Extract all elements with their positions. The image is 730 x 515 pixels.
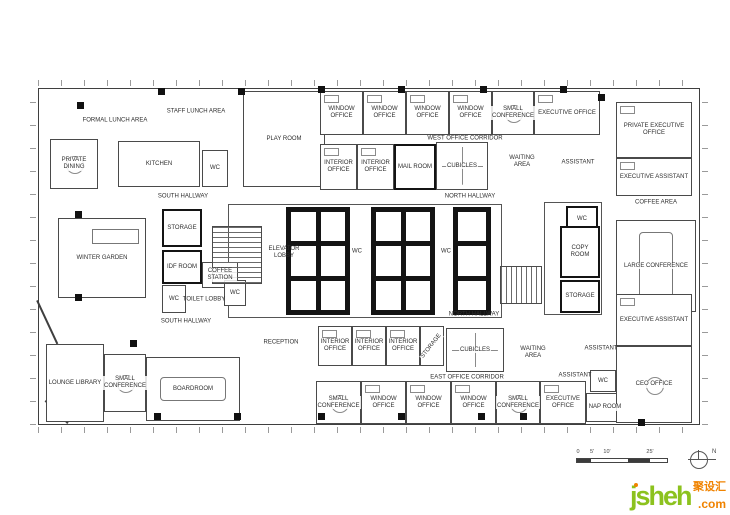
elevator-car <box>405 211 432 242</box>
scale-segment <box>591 459 606 462</box>
label-wc-core-2: WC <box>441 249 451 256</box>
watermark: jsheh 聚设汇 .com <box>630 478 728 512</box>
room-label: WINDOW OFFICE <box>450 106 491 120</box>
scale-label-25: 25' <box>646 449 653 455</box>
room-boardroom: BOARDROOM <box>146 357 240 421</box>
room-interior-office-t1: INTERIOR OFFICE <box>320 144 357 190</box>
scale-label-10: 10' <box>603 449 610 455</box>
room-executive-assistant-s: EXECUTIVE ASSISTANT <box>616 294 692 346</box>
room-storage-mr: STORAGE <box>560 280 600 313</box>
room-label: SMALL CONFERENCE <box>103 376 147 390</box>
column <box>638 419 645 426</box>
room-label: WINDOW OFFICE <box>407 396 450 410</box>
column <box>480 86 487 93</box>
label-west-office-corridor: WEST OFFICE CORRIDOR <box>427 136 502 143</box>
room-window-office-s2: WINDOW OFFICE <box>406 381 451 424</box>
elevator-car <box>290 211 317 242</box>
room-label: SMALL CONFERENCE <box>317 396 361 410</box>
room-label: LOUNGE LIBRARY <box>48 380 103 387</box>
room-label: COFFEE STATION <box>203 268 237 282</box>
label-formal-lunch-area: FORMAL LUNCH AREA <box>83 118 148 125</box>
column <box>75 294 82 301</box>
room-mail-room: MAIL ROOM <box>394 144 436 190</box>
room-label: MAIL ROOM <box>397 164 433 171</box>
room-label: WC <box>229 290 241 297</box>
label-waiting-area-t: WAITING AREA <box>508 155 536 169</box>
column <box>560 86 567 93</box>
room-label: PRIVATE EXECUTIVE OFFICE <box>617 123 691 137</box>
room-wc-kitchen: WC <box>202 150 228 187</box>
elevator-car <box>457 245 487 276</box>
north-letter: N <box>712 449 716 455</box>
column <box>478 413 485 420</box>
room-kitchen: KITCHEN <box>118 141 200 187</box>
label-reception: RECEPTION <box>263 340 298 347</box>
label-assistant-s2: ASSISTANT <box>559 373 592 380</box>
room-label: EXECUTIVE ASSISTANT <box>619 174 689 181</box>
room-label: STORAGE <box>564 293 595 300</box>
label-east-office-corridor: EAST OFFICE CORRIDOR <box>430 375 504 382</box>
room-label: WC <box>597 378 609 385</box>
room-label: WINDOW OFFICE <box>321 106 362 120</box>
label-assistant-s1: ASSISTANT <box>585 346 618 353</box>
room-window-office-s3: WINDOW OFFICE <box>451 381 496 424</box>
grid-ticks-bottom <box>38 427 702 433</box>
label-coffee-area: COFFEE AREA <box>635 200 677 207</box>
room-lounge-library: LOUNGE LIBRARY <box>46 344 104 422</box>
label-toilet-lobby: TOILET LOBBY <box>183 297 225 304</box>
room-small-conference-sw: SMALL CONFERENCE <box>104 354 146 412</box>
room-private-dining: PRIVATE DINING <box>50 139 98 189</box>
room-label: STORAGE <box>420 332 445 361</box>
room-label: WINDOW OFFICE <box>452 396 495 410</box>
room-window-office-t4: WINDOW OFFICE <box>449 91 492 135</box>
elevator-bank-a <box>286 207 350 315</box>
room-private-executive-office: PRIVATE EXECUTIVE OFFICE <box>616 102 692 158</box>
room-window-office-t3: WINDOW OFFICE <box>406 91 449 135</box>
room-label: BOARDROOM <box>172 386 214 393</box>
room-label: WINTER GARDEN <box>76 255 129 262</box>
column <box>158 88 165 95</box>
column <box>130 340 137 347</box>
column <box>318 413 325 420</box>
room-storage-ml: STORAGE <box>162 209 202 247</box>
elevator-car <box>375 245 402 276</box>
room-executive-office-t: EXECUTIVE OFFICE <box>534 91 600 135</box>
grid-ticks-right <box>702 90 708 425</box>
label-south-hallway-1: SOUTH HALLWAY <box>158 194 208 201</box>
elevator-car <box>405 280 432 311</box>
room-executive-assistant-t: EXECUTIVE ASSISTANT <box>616 158 692 196</box>
elevator-car <box>320 280 347 311</box>
room-label: COPY ROOM <box>562 245 598 259</box>
scale-segment <box>577 459 591 462</box>
room-label: INTERIOR OFFICE <box>319 339 351 353</box>
elevator-car <box>375 211 402 242</box>
column <box>238 88 245 95</box>
room-cubicles-t: CUBICLES <box>436 142 488 190</box>
room-label: SMALL CONFERENCE <box>491 106 535 120</box>
elevator-car <box>290 280 317 311</box>
room-label: INTERIOR OFFICE <box>387 339 419 353</box>
room-interior-office-s3: INTERIOR OFFICE <box>386 326 420 366</box>
column <box>318 86 325 93</box>
column <box>154 413 161 420</box>
room-label: EXECUTIVE ASSISTANT <box>619 317 689 324</box>
room-label: PLAY ROOM <box>265 136 302 143</box>
room-label: SMALL CONFERENCE <box>496 396 540 410</box>
room-interior-office-s2: INTERIOR OFFICE <box>352 326 386 366</box>
elevator-car <box>375 280 402 311</box>
elevator-bank-c <box>453 207 491 315</box>
room-label: WINDOW OFFICE <box>364 106 405 120</box>
column <box>77 102 84 109</box>
room-wc-se: WC <box>590 370 616 392</box>
room-winter-garden: WINTER GARDEN <box>58 218 146 298</box>
room-label: EXECUTIVE OFFICE <box>537 110 597 117</box>
column <box>598 94 605 101</box>
scale-bar-rule <box>576 458 668 463</box>
label-north-hallway-2: NORTH HALLWAY <box>449 312 499 319</box>
room-copy-room: COPY ROOM <box>560 226 600 278</box>
label-south-hallway-2: SOUTH HALLWAY <box>161 319 211 326</box>
room-interior-office-s1: INTERIOR OFFICE <box>318 326 352 366</box>
room-label: WC <box>168 296 180 303</box>
elevator-bank-b <box>371 207 435 315</box>
floor-plan-page: PRIVATE DININGKITCHENWCPLAY ROOMWINDOW O… <box>0 0 730 515</box>
room-label: INTERIOR OFFICE <box>321 160 356 174</box>
scale-label-0: 0 <box>576 449 579 455</box>
scale-bar: 0 5' 10' 25' <box>576 449 668 467</box>
room-label: CUBICLES <box>446 163 478 170</box>
scale-label-5: 5' <box>590 449 594 455</box>
room-label: WINDOW OFFICE <box>362 396 405 410</box>
room-storage-s: STORAGE <box>420 326 444 366</box>
room-label: LARGE CONFERENCE <box>623 263 689 270</box>
elevator-car <box>457 280 487 311</box>
grid-ticks-top <box>38 80 702 86</box>
column <box>234 413 241 420</box>
room-label: NAP ROOM <box>588 404 623 411</box>
grid-ticks-left <box>30 95 36 425</box>
room-label: INTERIOR OFFICE <box>353 339 385 353</box>
north-arrow: N <box>688 449 722 471</box>
room-window-office-t1: WINDOW OFFICE <box>320 91 363 135</box>
elevator-car <box>457 211 487 242</box>
column <box>398 413 405 420</box>
room-label: STORAGE <box>166 225 197 232</box>
room-label: WINDOW OFFICE <box>407 106 448 120</box>
elevator-car <box>320 211 347 242</box>
room-label: IDF ROOM <box>166 264 198 271</box>
scale-segment <box>606 459 628 462</box>
room-label: EXECUTIVE OFFICE <box>541 396 585 410</box>
watermark-chinese: 聚设汇 <box>693 478 726 494</box>
label-waiting-area-s: WAITING AREA <box>519 346 547 360</box>
room-executive-office-s: EXECUTIVE OFFICE <box>540 381 586 424</box>
watermark-dot-icon <box>634 483 638 487</box>
room-small-conference-t: SMALL CONFERENCE <box>492 91 534 135</box>
scale-bar-numbers: 0 5' 10' 25' <box>576 449 668 457</box>
room-label: KITCHEN <box>145 161 173 168</box>
elevator-car <box>405 245 432 276</box>
scale-segment <box>628 459 650 462</box>
room-small-conference-s2: SMALL CONFERENCE <box>496 381 540 424</box>
room-label: WC <box>576 216 588 223</box>
label-wc-core-1: WC <box>352 249 362 256</box>
column <box>520 413 527 420</box>
label-assistant-t: ASSISTANT <box>562 160 595 167</box>
room-label: CUBICLES <box>459 347 491 354</box>
room-label: INTERIOR OFFICE <box>358 160 393 174</box>
room-label: PRIVATE DINING <box>51 157 97 171</box>
label-elevator-lobby: ELEVATOR LOBBY <box>267 246 301 260</box>
stair-east <box>500 266 542 304</box>
label-staff-lunch-area: STAFF LUNCH AREA <box>167 109 226 116</box>
watermark-name: jsheh <box>630 481 691 512</box>
north-arrow-icon <box>690 451 708 469</box>
column <box>75 211 82 218</box>
room-ceo-office: CEO OFFICE <box>616 346 692 423</box>
elevator-car <box>320 245 347 276</box>
watermark-tld: .com <box>698 497 726 511</box>
column <box>398 86 405 93</box>
room-label: CEO OFFICE <box>635 381 674 388</box>
room-label: WC <box>209 165 221 172</box>
room-interior-office-t2: INTERIOR OFFICE <box>357 144 394 190</box>
room-play-room: PLAY ROOM <box>243 91 325 187</box>
label-north-hallway-1: NORTH HALLWAY <box>445 194 495 201</box>
room-idf-room: IDF ROOM <box>162 250 202 284</box>
room-cubicles-s: CUBICLES <box>446 328 504 372</box>
room-window-office-t2: WINDOW OFFICE <box>363 91 406 135</box>
